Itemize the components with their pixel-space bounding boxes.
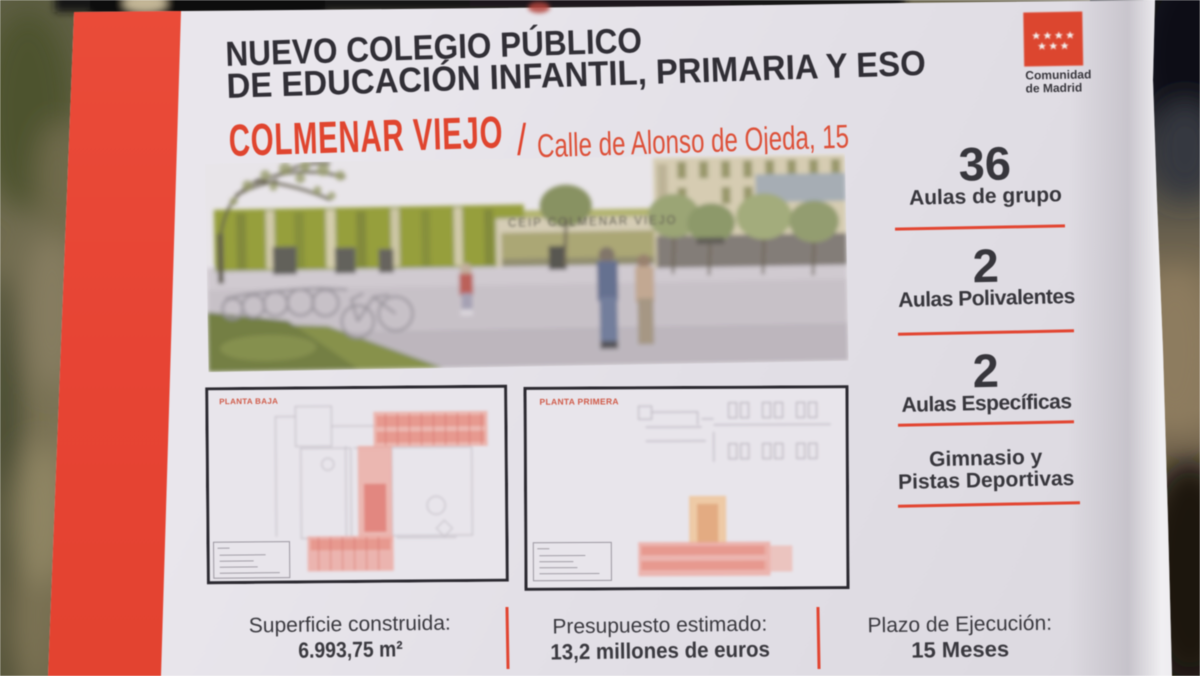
svg-text:PLANTA PRIMERA: PLANTA PRIMERA — [540, 396, 619, 406]
svg-text:PLANTA BAJA: PLANTA BAJA — [219, 397, 278, 407]
